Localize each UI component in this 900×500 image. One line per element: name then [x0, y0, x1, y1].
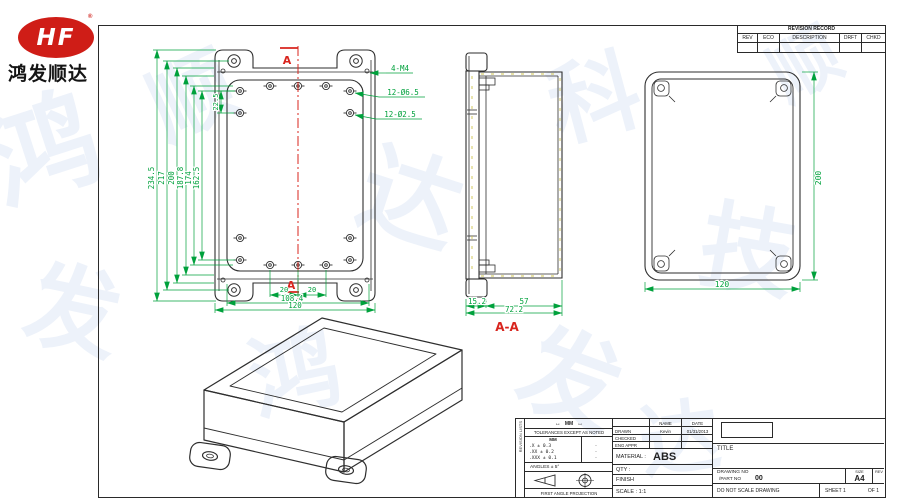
projection-symbols — [525, 472, 613, 489]
dim-200-side: 200 — [814, 171, 823, 186]
tol-mm-header: MM — [525, 437, 581, 444]
size-value: A4 — [846, 474, 873, 483]
drawn-name: Kevin — [649, 427, 681, 435]
drawing-no-label: DRAWING NO — [717, 470, 749, 475]
qty-label: QTY : — [613, 465, 713, 475]
title-block: REVISION LISTS ↔ MM ↔ TOLERANCES EXCEPT … — [515, 418, 886, 498]
dim-arrow-icon: ↔ — [577, 421, 583, 427]
checked-label: CHECKED — [615, 435, 636, 442]
title-block-side-strip: REVISION LISTS — [516, 419, 525, 497]
tol-row: .X ± 0.3 — [529, 444, 551, 449]
first-angle-label: FIRST ANGLE PROJECTION — [525, 489, 613, 497]
dim-22_5: 22.5 — [212, 94, 220, 111]
dim-20-left: 20 — [280, 286, 288, 294]
isometric-view — [189, 318, 462, 485]
drawn-label: DRAWN — [615, 427, 631, 435]
dim-234_5: 234.5 — [147, 167, 156, 190]
material-label: MATERIAL : — [616, 454, 646, 460]
units-label: MM — [565, 421, 573, 427]
scale-label: SCALE : 1:1 — [613, 486, 713, 497]
date-header: DATE — [681, 419, 713, 427]
section-line — [280, 46, 299, 305]
section-view — [466, 53, 562, 297]
dim-200: 200 — [167, 171, 176, 185]
first-angle-symbol — [529, 472, 609, 489]
dim-15_2: 15.2 — [468, 297, 486, 306]
dim-72_2: 72.2 — [505, 305, 523, 314]
dim-162_5: 162.5 — [192, 167, 201, 190]
side-view — [645, 72, 800, 280]
callout-4-M4: 4-M4 — [391, 64, 410, 73]
sheet-label: SHEET 1 — [825, 488, 846, 494]
drawn-date: 01/31/2013 — [681, 427, 713, 435]
part-no-value: 00 — [755, 475, 763, 482]
tol-row: .XXX ± 0.1 — [529, 456, 557, 461]
callout-12-d2_5: 12-Ø2.5 — [384, 110, 416, 119]
section-view-label: A-A — [495, 320, 519, 334]
material-value: ABS — [653, 451, 676, 463]
side-strip-label: REVISION LISTS — [518, 421, 523, 452]
do-not-scale-note: DO NOT SCALE DRAWING — [713, 484, 819, 497]
drawing-sheet: 鸿 发 顺 达 科 技 鸿 发 顺 达 HF ® 鸿发顺达 REVISION R… — [0, 0, 900, 500]
side-dimensions — [645, 72, 818, 292]
tolerance-table: MM .X ± 0.3 .XX ± 0.2 .XXX ± 0.1 · · · — [525, 437, 613, 463]
callout-12-d6_5: 12-Ø6.5 — [387, 88, 419, 97]
eng-appr-label: ENG APPR — [615, 442, 637, 449]
section-label-top: A — [283, 54, 292, 67]
dim-120-side: 120 — [715, 280, 730, 289]
finish-label: FINISH — [613, 475, 713, 486]
title-label: TITLE — [717, 446, 733, 452]
name-header: NAME — [649, 419, 681, 427]
dim-120-front: 120 — [288, 301, 302, 310]
tol-mark: · — [595, 455, 597, 461]
dim-20-right: 20 — [308, 286, 316, 294]
dim-arrow-icon: ↔ — [555, 421, 561, 427]
rev-label: REV — [873, 470, 885, 474]
part-no-label: /PART NO — [719, 477, 741, 482]
dim-217: 217 — [157, 171, 166, 185]
sheet-of-label: OF 1 — [868, 488, 879, 494]
logo-placeholder-box — [721, 422, 773, 438]
units-row: ↔ MM ↔ — [525, 419, 613, 429]
tol-row: .XX ± 0.2 — [529, 450, 554, 455]
front-view — [215, 50, 375, 301]
front-opening — [227, 80, 363, 271]
tolerances-title: TOLERANCES EXCEPT AS NOTED — [525, 429, 613, 437]
